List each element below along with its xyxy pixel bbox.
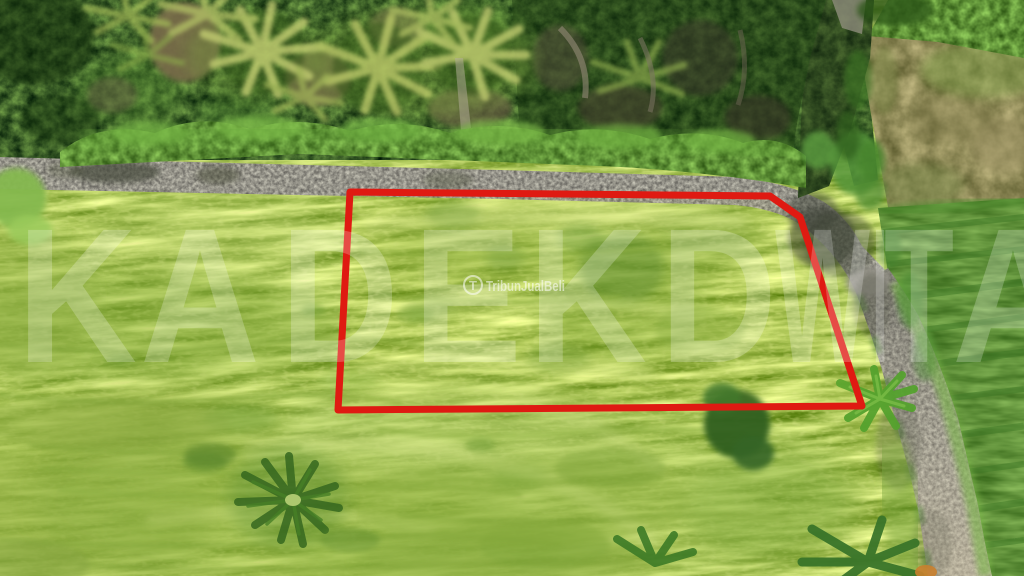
svg-text:A: A xyxy=(952,188,1024,403)
svg-text:W: W xyxy=(775,188,870,403)
svg-text:A: A xyxy=(140,188,260,403)
svg-text:TribunJualBeli: TribunJualBeli xyxy=(486,278,565,295)
svg-text:T: T xyxy=(884,188,954,403)
svg-text:T: T xyxy=(469,278,477,293)
svg-text:D: D xyxy=(660,188,777,403)
svg-text:D: D xyxy=(280,188,399,403)
svg-text:E: E xyxy=(413,188,522,403)
svg-text:K: K xyxy=(17,188,137,403)
svg-text:K: K xyxy=(528,188,647,403)
